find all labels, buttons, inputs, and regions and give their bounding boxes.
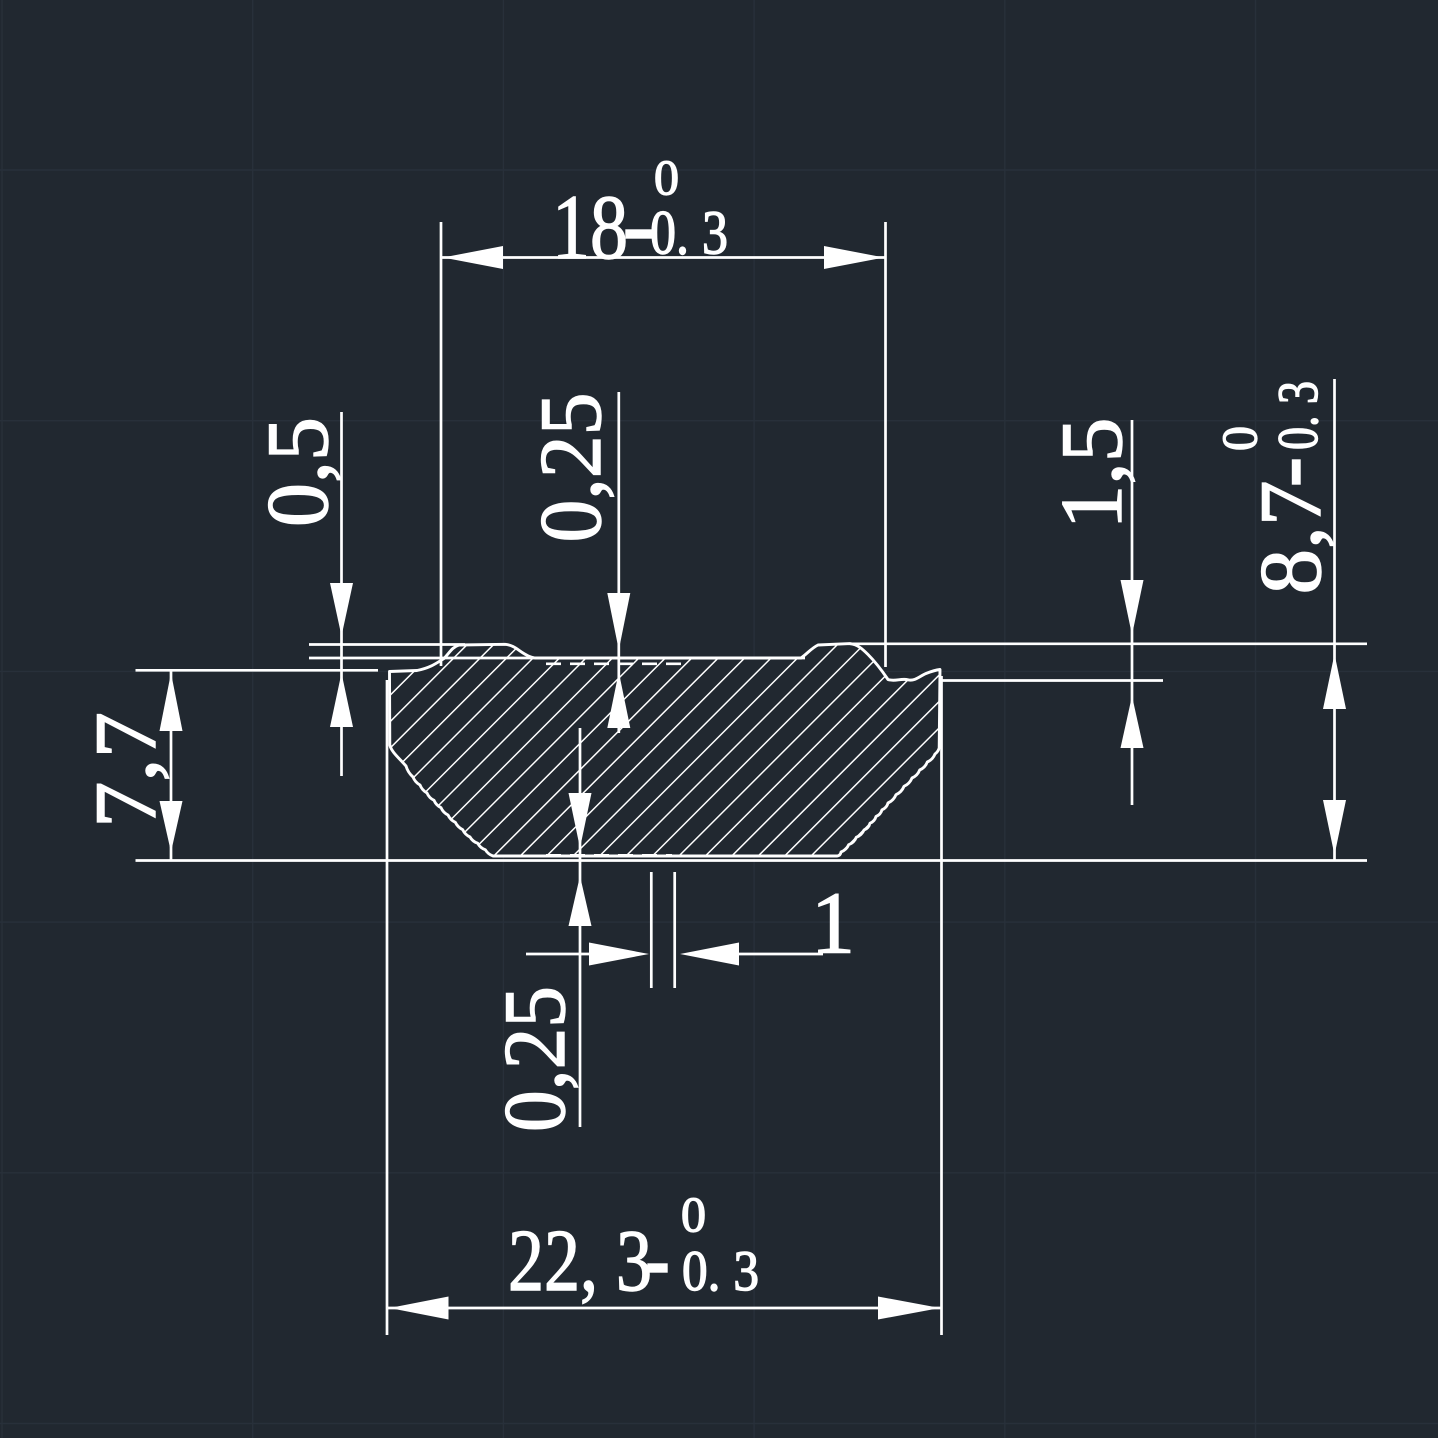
svg-text:18: 18 — [552, 176, 628, 278]
svg-text:0,25: 0,25 — [487, 986, 584, 1132]
svg-text:0. 3: 0. 3 — [682, 1240, 759, 1303]
svg-text:1,5: 1,5 — [1044, 418, 1141, 530]
svg-text:7,7: 7,7 — [78, 712, 175, 828]
svg-text:0: 0 — [681, 1186, 706, 1242]
svg-text:0. 3: 0. 3 — [650, 200, 728, 268]
svg-text:0,5: 0,5 — [250, 417, 347, 527]
svg-text:0. 3: 0. 3 — [1267, 381, 1330, 450]
svg-text:0: 0 — [654, 149, 679, 205]
svg-text:8,7: 8,7 — [1243, 481, 1340, 595]
svg-text:0,25: 0,25 — [523, 393, 620, 543]
svg-text:1: 1 — [811, 876, 855, 973]
svg-text:22, 3: 22, 3 — [508, 1213, 652, 1310]
svg-text:0: 0 — [1211, 426, 1267, 451]
